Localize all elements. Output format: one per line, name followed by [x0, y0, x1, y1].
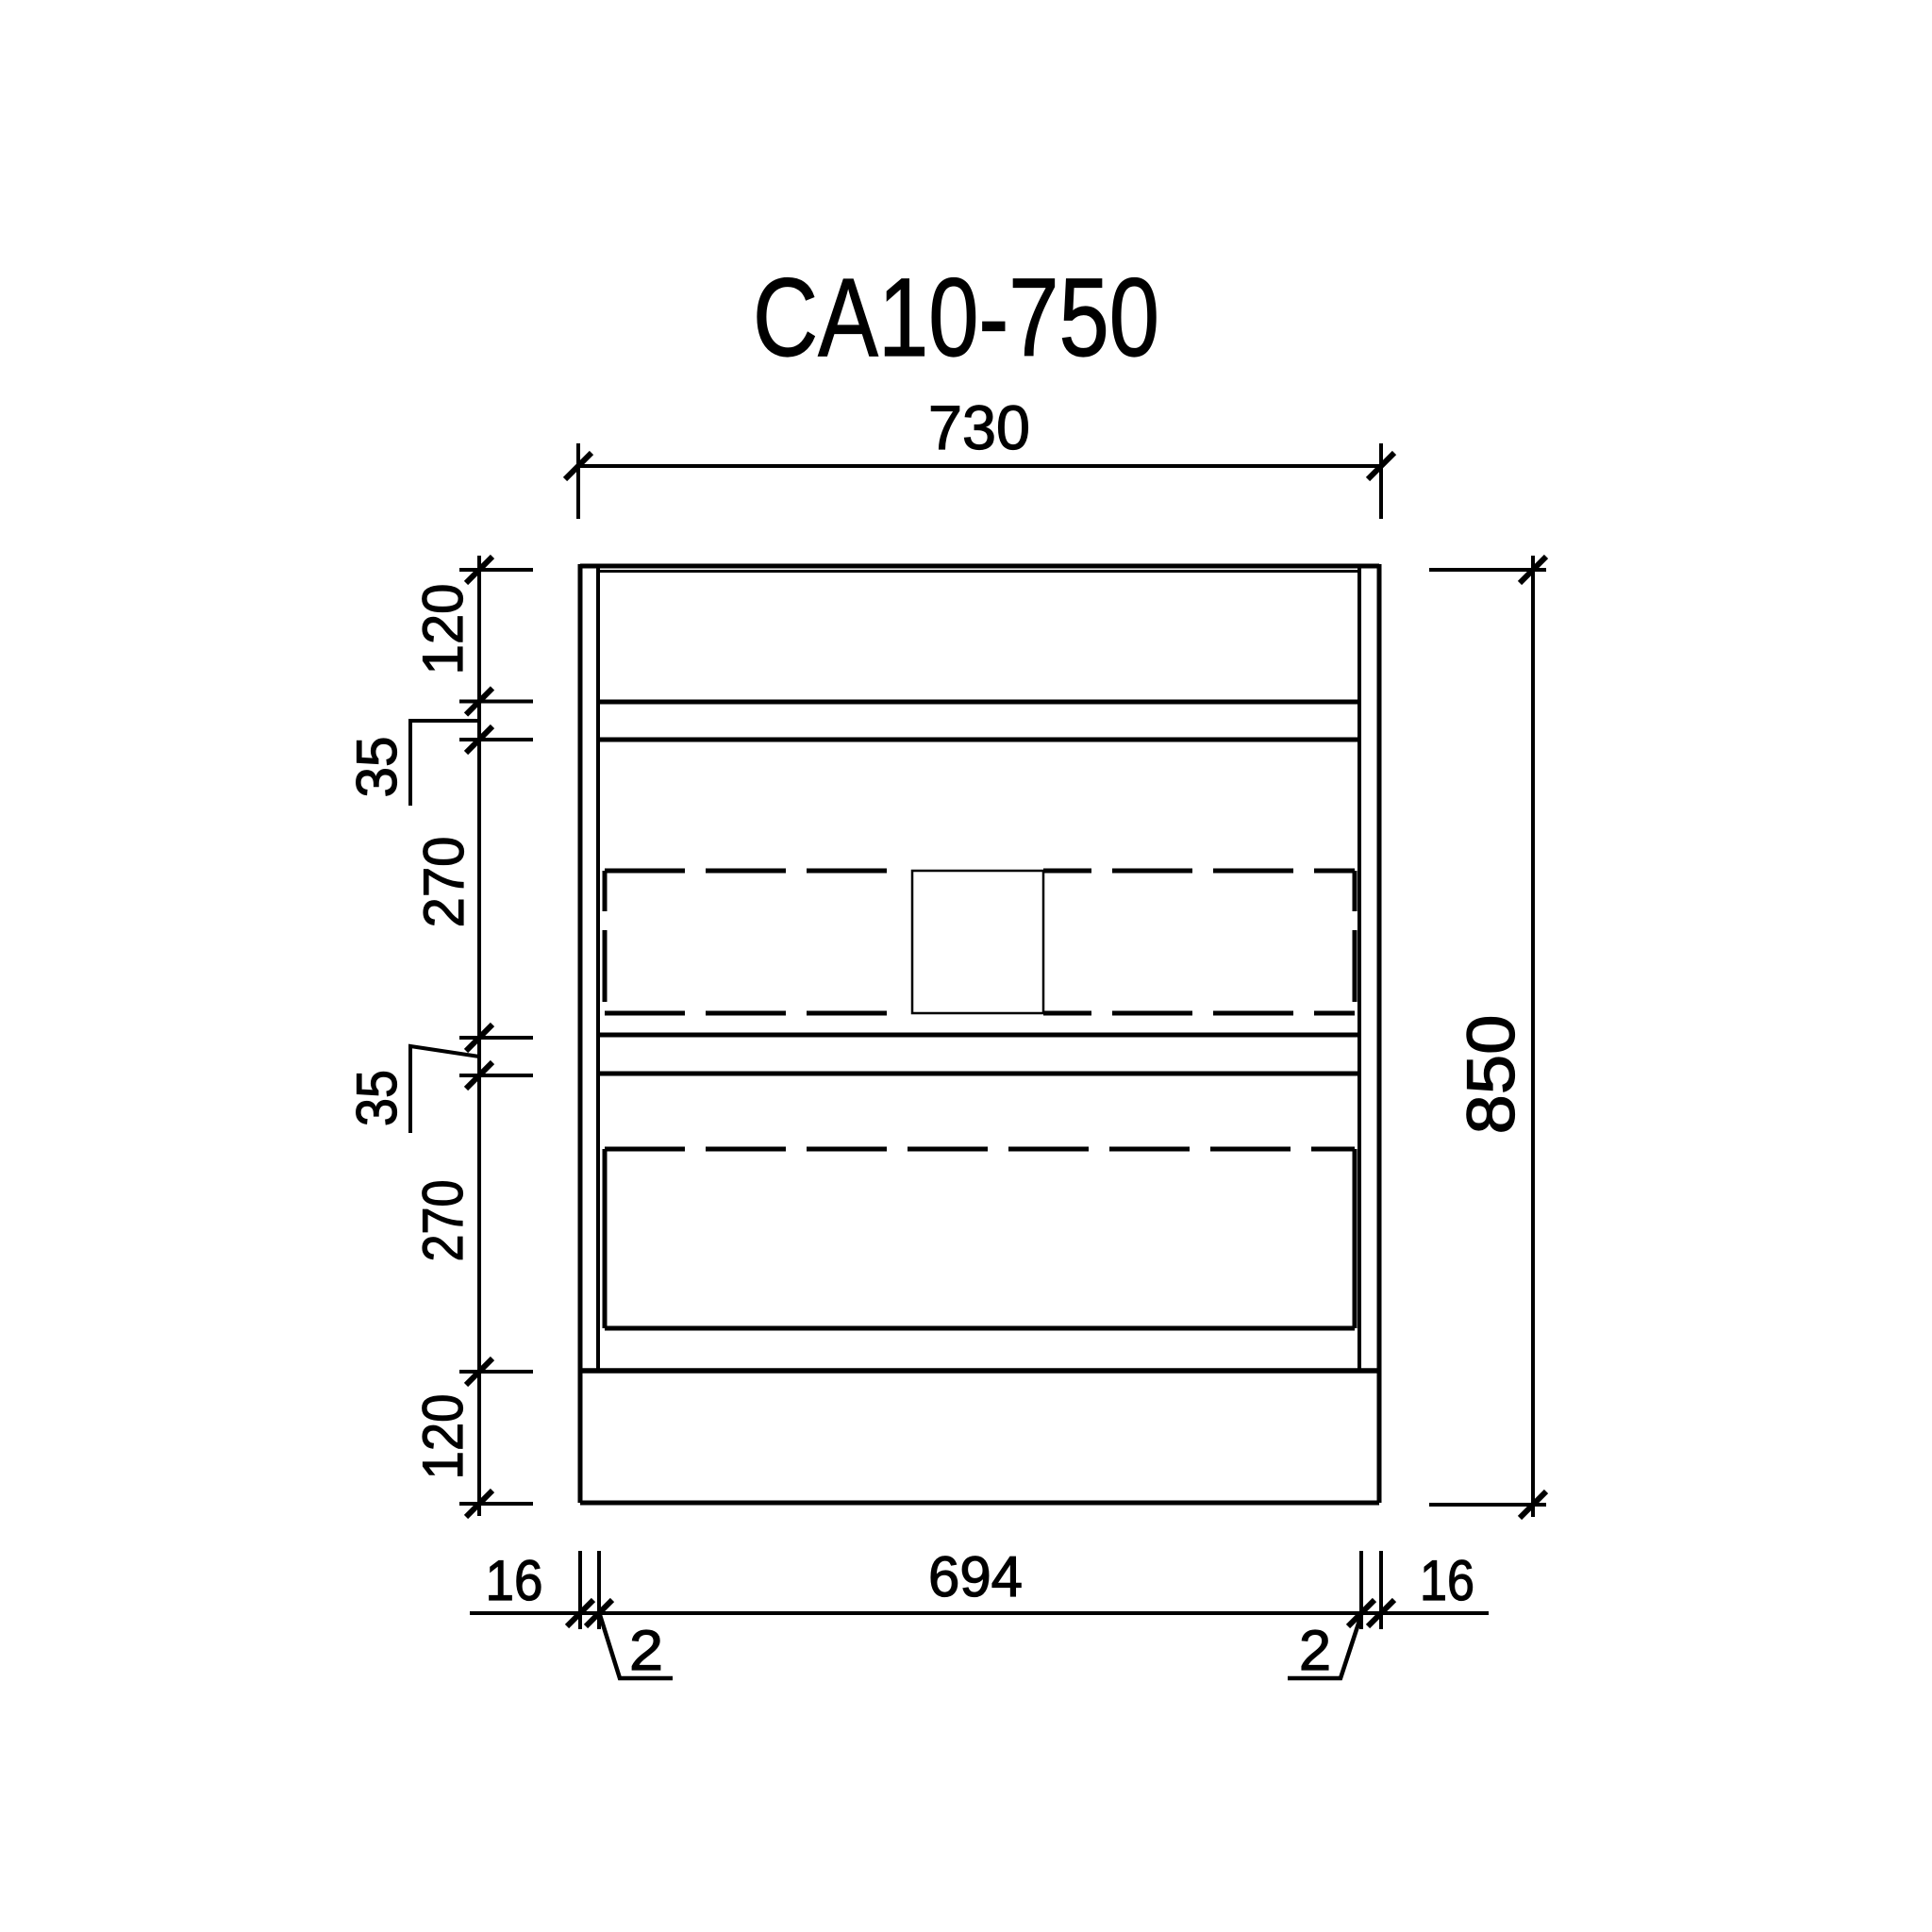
svg-text:730: 730 [928, 392, 1030, 462]
svg-text:120: 120 [411, 1394, 475, 1480]
svg-text:35: 35 [345, 737, 408, 798]
svg-text:270: 270 [411, 1180, 475, 1262]
svg-text:2: 2 [1299, 1619, 1331, 1682]
svg-text:CA10-750: CA10-750 [753, 256, 1159, 380]
svg-text:120: 120 [411, 584, 475, 675]
svg-text:694: 694 [928, 1545, 1023, 1608]
svg-text:850: 850 [1455, 1015, 1529, 1135]
svg-text:16: 16 [1420, 1549, 1474, 1612]
svg-text:16: 16 [486, 1549, 543, 1612]
svg-text:2: 2 [629, 1619, 663, 1682]
svg-text:35: 35 [345, 1070, 408, 1126]
svg-text:270: 270 [412, 837, 475, 928]
